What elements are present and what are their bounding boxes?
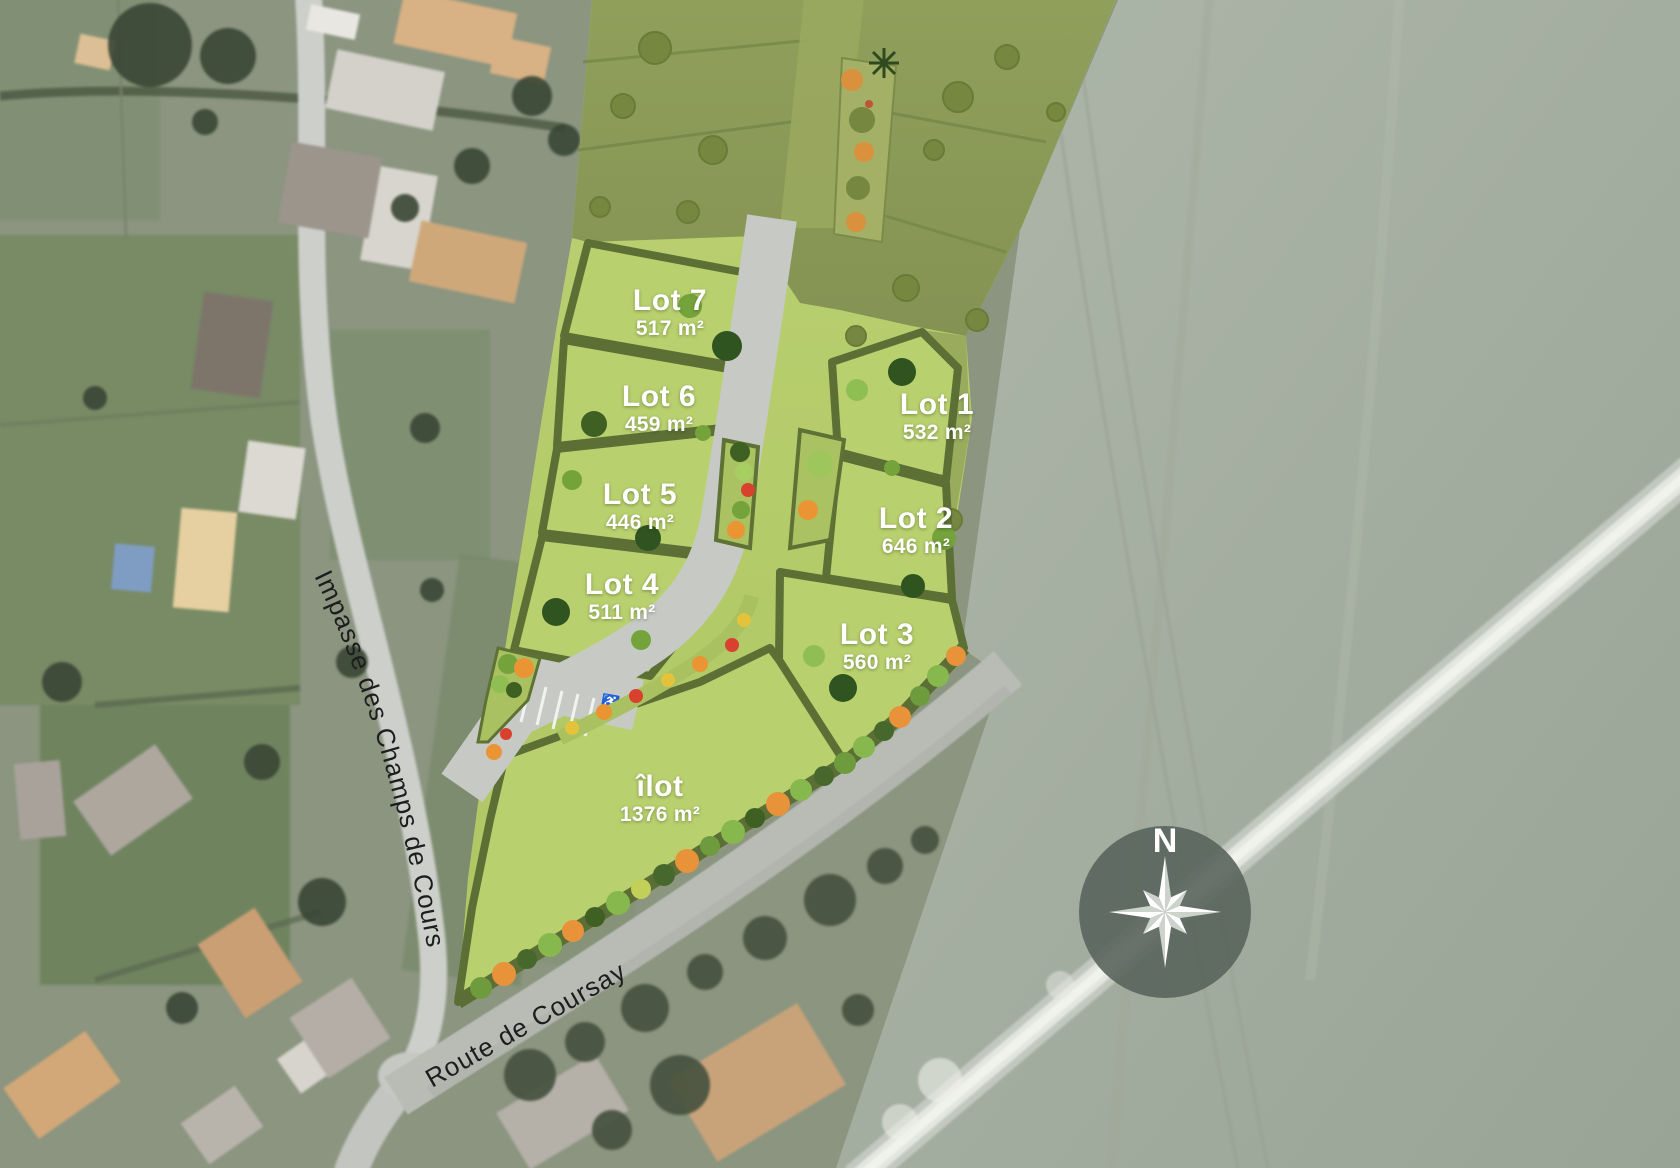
compass-north-label: N bbox=[1153, 822, 1178, 860]
site-plan-map: ♿ bbox=[0, 0, 1680, 1168]
palm-plant-icon bbox=[869, 48, 899, 78]
map-canvas: ♿ bbox=[0, 0, 1680, 1168]
lot-2-parcel bbox=[826, 456, 952, 598]
